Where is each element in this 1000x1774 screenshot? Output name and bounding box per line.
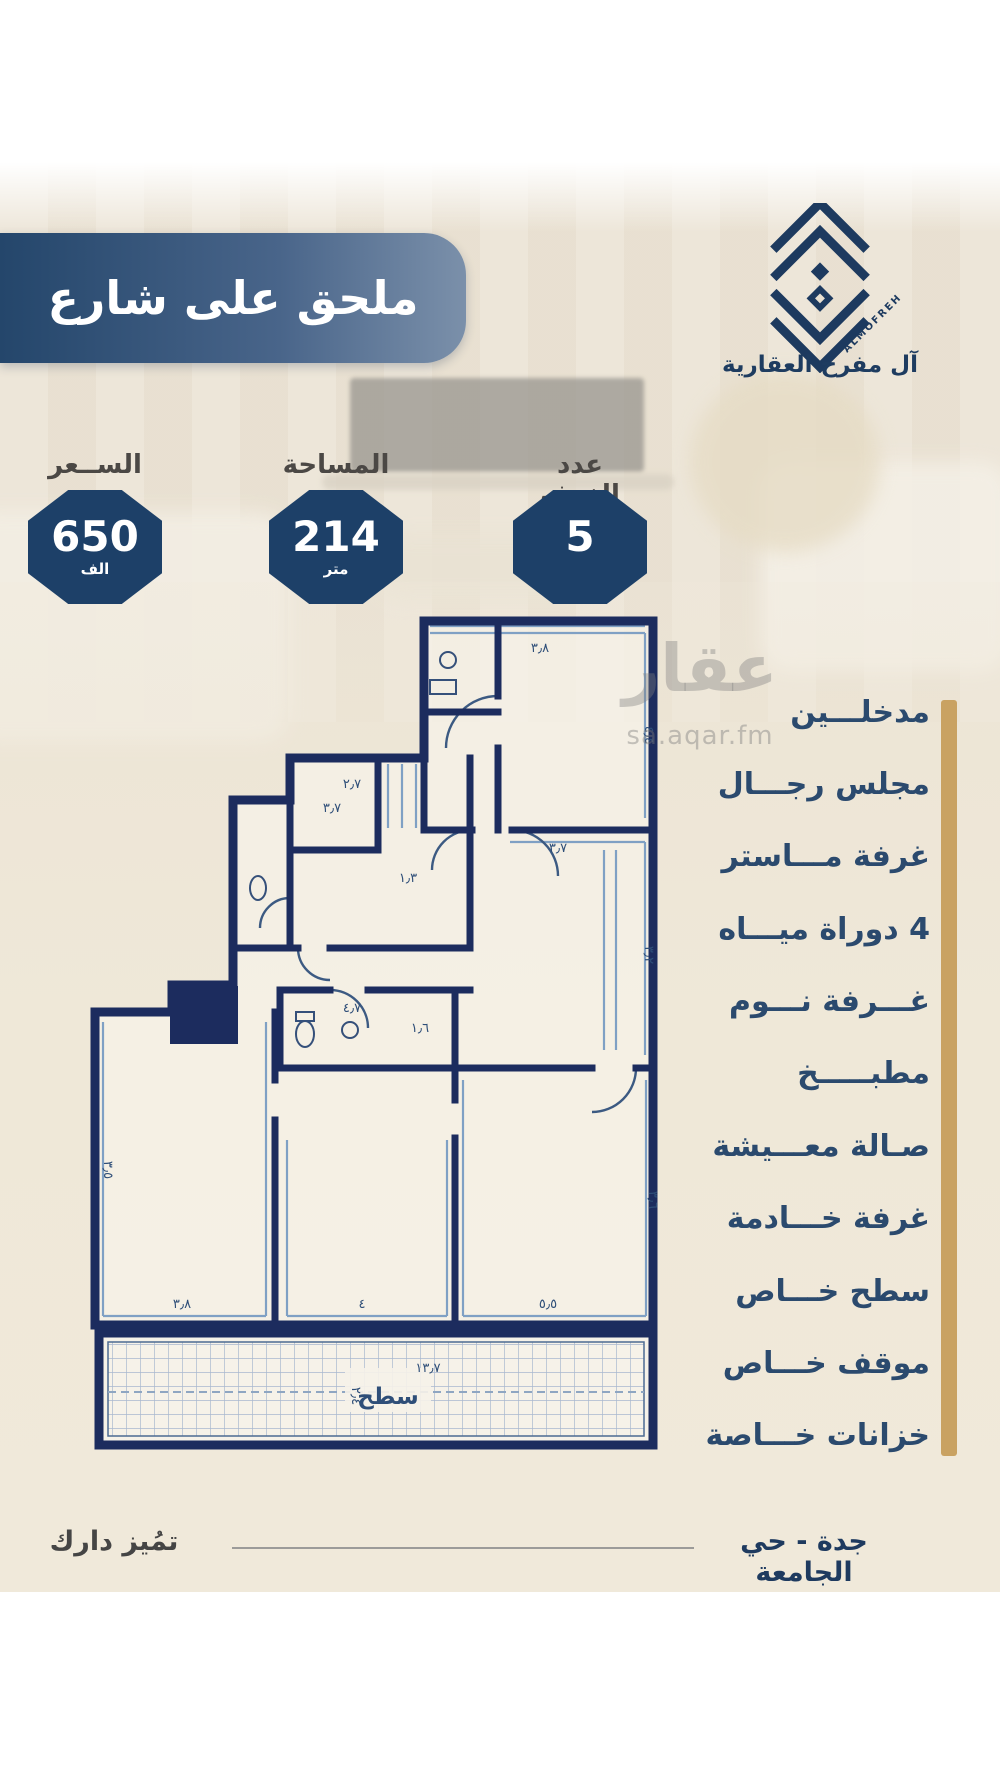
title-banner: ملحق على شارع <box>0 233 466 363</box>
dimension-label: ٢٫٧ <box>343 777 361 792</box>
logo-latin-text: ALMOFREH <box>841 292 904 355</box>
stat-rooms-value: 5 <box>565 516 594 558</box>
poster-page: ملحق على شارع ALMOFREH آل مفرح العقارية … <box>0 0 1000 1774</box>
stat-area-label: المساحة <box>269 450 403 484</box>
dimension-label: ١٫٣ <box>399 871 417 886</box>
feature-item: مدخلـــين <box>620 676 960 748</box>
stat-price-label: الســعر <box>28 450 162 484</box>
feature-item: غرفة خـــادمة <box>620 1183 960 1255</box>
kufic-logo-icon: ALMOFREH <box>735 203 905 373</box>
feature-item: غـــرفة نـــوم <box>620 965 960 1037</box>
feature-label: غرفة مـــاستر <box>722 839 930 874</box>
feature-item: مطبـــــخ <box>620 1038 960 1110</box>
feature-item: خزانات خـــاصة <box>620 1400 960 1472</box>
stat-price-badge: 650 الف <box>28 490 162 604</box>
stat-rooms-label: عدد الغرف <box>513 450 647 484</box>
feature-item: مجلس رجـــال <box>620 748 960 820</box>
dimension-label: ٤ <box>359 1297 366 1312</box>
dimension-label: ٣٫٧ <box>323 801 341 816</box>
features-list: مدخلـــين مجلس رجـــال غرفة مـــاستر 4 د… <box>620 676 960 1472</box>
feature-label: غـــرفة نـــوم <box>729 984 930 1019</box>
feature-label: خزانات خـــاصة <box>705 1418 930 1453</box>
feature-label: 4 دوراة ميـــاه <box>718 912 930 947</box>
stat-price-unit: الف <box>81 560 110 578</box>
company-name: آل مفرح العقارية <box>700 352 940 378</box>
stat-price: الســعر 650 الف <box>28 450 162 604</box>
dimension-label: ٥٫٥ <box>539 1297 557 1312</box>
footer-slogan: تمُيز دارك <box>34 1526 194 1557</box>
roof-label: سطح <box>357 1384 419 1410</box>
dimension-label: ١٫٦ <box>411 1021 429 1036</box>
feature-item: صـالة معـــيشة <box>620 1110 960 1182</box>
feature-item: موقف خـــاص <box>620 1327 960 1399</box>
feature-label: موقف خـــاص <box>723 1346 930 1381</box>
plant-silhouette <box>690 372 880 552</box>
feature-label: سطح خـــاص <box>735 1274 930 1309</box>
stat-rooms-badge: 5 <box>513 490 647 604</box>
plan-floor-fill <box>95 621 653 1325</box>
stat-area-unit: متر <box>324 560 349 578</box>
dimension-label: ٣٫٨ <box>173 1297 191 1312</box>
feature-label: مجلس رجـــال <box>718 767 930 802</box>
stat-area: المساحة 214 متر <box>269 450 403 604</box>
feature-item: غرفة مـــاستر <box>620 821 960 893</box>
logo-square <box>811 262 829 280</box>
footer-location: جدة - حي الجامعة <box>694 1526 914 1588</box>
logo-square-outline <box>811 289 829 307</box>
logo-stroke <box>773 203 866 296</box>
poster-title: ملحق على شارع <box>47 271 418 325</box>
dimension-label: ٣٫٨ <box>531 641 549 656</box>
plan-solid-block <box>170 986 238 1044</box>
stat-price-value: 650 <box>51 516 139 558</box>
brand-logo: ALMOFREH <box>735 203 905 373</box>
dimension-label: ٤٫٧ <box>343 1001 361 1016</box>
dimension-label: ٣٫٧ <box>549 841 567 856</box>
floor-plan: سطح ٣٫٨٤٫٤٢٫٧٣٫٧١٫٣٣٫٧٣٫٢٤٫٧١٫٦٣٫٥٣٫٨٤٥٫… <box>85 600 670 1465</box>
feature-item: سطح خـــاص <box>620 1255 960 1327</box>
feature-label: مطبـــــخ <box>797 1056 930 1091</box>
feature-label: صـالة معـــيشة <box>712 1129 930 1164</box>
feature-item: 4 دوراة ميـــاه <box>620 893 960 965</box>
stat-area-value: 214 <box>292 516 380 558</box>
footer-divider-line <box>232 1547 694 1549</box>
dimension-label: ١٣٫٧ <box>415 1361 440 1376</box>
stat-area-badge: 214 متر <box>269 490 403 604</box>
feature-label: غرفة خـــادمة <box>727 1201 930 1236</box>
plan-roof-terrace: سطح <box>99 1333 653 1445</box>
dimension-label: ٢٫٤ <box>348 1387 363 1405</box>
stat-rooms: عدد الغرف 5 <box>513 450 647 604</box>
feature-label: مدخلـــين <box>790 695 930 730</box>
dimension-label: ٣٫٥ <box>100 1161 115 1179</box>
